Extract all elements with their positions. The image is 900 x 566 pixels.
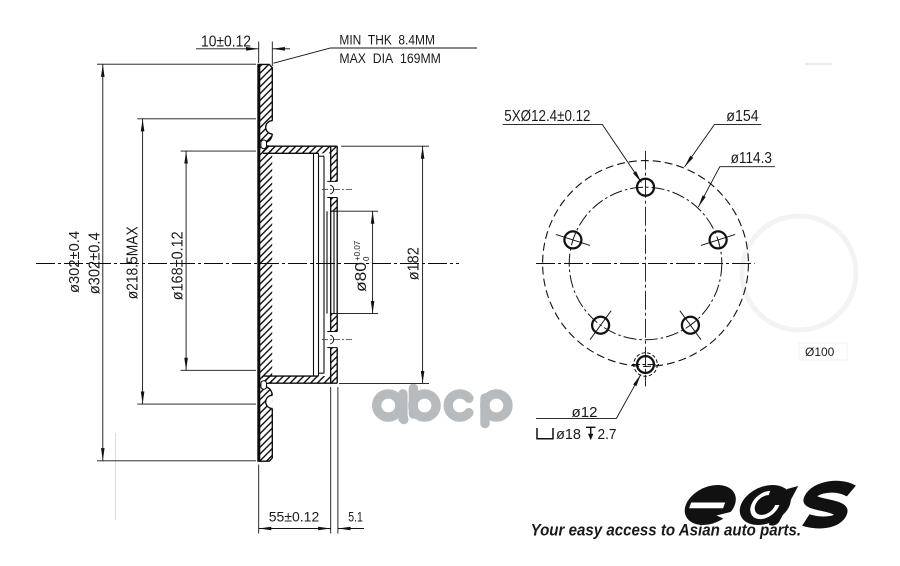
svg-text:ø182: ø182 bbox=[405, 247, 422, 280]
svg-text:10±0.12: 10±0.12 bbox=[201, 34, 251, 51]
svg-text:ø168±0.12: ø168±0.12 bbox=[169, 231, 186, 300]
svg-text:2.7: 2.7 bbox=[598, 426, 617, 443]
svg-text:ø114.3: ø114.3 bbox=[731, 150, 772, 167]
svg-text:ø154: ø154 bbox=[726, 108, 759, 125]
svg-text:5XØ12.4±0.12: 5XØ12.4±0.12 bbox=[504, 108, 590, 125]
svg-text:ø18: ø18 bbox=[556, 426, 581, 443]
svg-text:ø12: ø12 bbox=[572, 404, 598, 421]
svg-text:55±0.12: 55±0.12 bbox=[269, 509, 320, 525]
svg-text:0: 0 bbox=[362, 256, 371, 261]
svg-text:+0.07: +0.07 bbox=[353, 240, 362, 261]
svg-text:Ø100: Ø100 bbox=[805, 345, 835, 359]
svg-text:ø80: ø80 bbox=[353, 262, 370, 292]
svg-text:ø302±0.4: ø302±0.4 bbox=[66, 231, 83, 293]
svg-text:MAX DIA 169MM: MAX DIA 169MM bbox=[339, 51, 441, 67]
svg-text:ø302±0.4: ø302±0.4 bbox=[86, 232, 103, 294]
svg-text:ø218.5MAX: ø218.5MAX bbox=[124, 226, 141, 300]
svg-text:Your easy access to Asian auto: Your easy access to Asian auto parts. bbox=[531, 522, 802, 540]
svg-text:5.1: 5.1 bbox=[348, 509, 363, 525]
svg-text:MIN THK 8.4MM: MIN THK 8.4MM bbox=[339, 32, 435, 48]
